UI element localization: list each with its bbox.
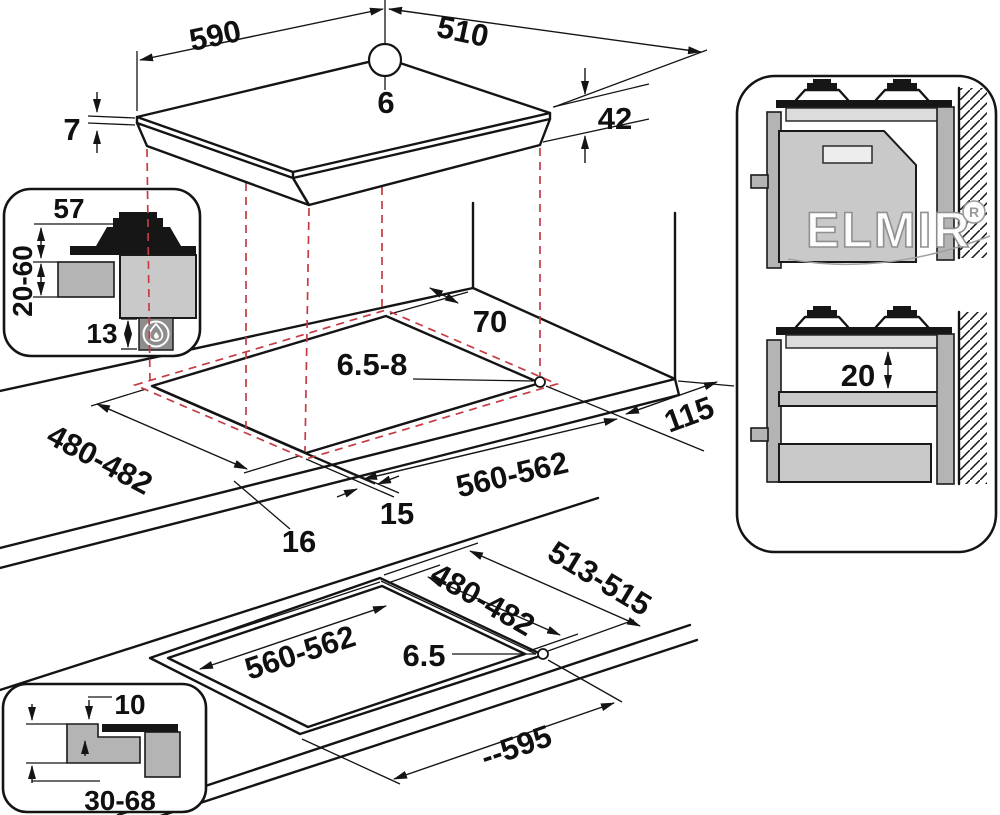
dim-cutout-width: 560-562 bbox=[157, 386, 704, 504]
dim-label-burner-height: 57 bbox=[53, 193, 84, 224]
dim-label-flush-worktop-thickness: 30-68 bbox=[84, 785, 156, 815]
dim-label-worktop-thickness: 20-60 bbox=[7, 245, 38, 317]
wall-hatching bbox=[959, 312, 987, 484]
dim-label-width: 590 bbox=[186, 13, 244, 58]
section-detail-inset: 57 20-60 13 bbox=[4, 189, 200, 356]
flush-hob-body-section bbox=[145, 732, 180, 777]
hob-glass-section bbox=[70, 246, 196, 255]
dim-label-depth: 510 bbox=[434, 9, 492, 54]
side-view-over-drawer: 20 bbox=[751, 306, 987, 484]
dim-label-flush-fixing-hole: 6.5 bbox=[402, 638, 445, 673]
watermark: ELMIR R bbox=[788, 201, 990, 264]
screw-hole-icon bbox=[535, 377, 545, 387]
hob-glass-side bbox=[776, 327, 952, 335]
dim-right-clearance: 115 bbox=[626, 381, 734, 439]
dim-hole: 6 bbox=[369, 0, 401, 120]
dim-label-flush-cutout-depth: 480-482 bbox=[425, 556, 541, 643]
burner-section bbox=[96, 227, 181, 246]
dim-overall-height: 42 bbox=[543, 68, 649, 163]
hob-glass-side bbox=[776, 100, 952, 108]
shelf bbox=[779, 392, 939, 406]
drawer-front bbox=[779, 444, 931, 482]
dim-label-hole: 6 bbox=[377, 85, 394, 120]
dim-label-edge-margin-side: 15 bbox=[380, 496, 414, 531]
dim-label-recess-lip: 10 bbox=[114, 689, 145, 720]
screw-hole-icon bbox=[538, 649, 548, 659]
watermark-brand: ELMIR bbox=[806, 202, 972, 258]
oven-vent bbox=[823, 146, 872, 163]
hole-callout-icon bbox=[369, 44, 401, 76]
dim-edge-margin-side: 15 bbox=[306, 453, 414, 531]
dim-label-air-gap: 20 bbox=[841, 358, 875, 393]
dim-label-fixing-hole: 6.5-8 bbox=[337, 347, 408, 382]
dim-label-clearance-below: 13 bbox=[86, 318, 117, 349]
dim-cutout-depth: 480-482 bbox=[41, 389, 299, 502]
dim-label-cutout-depth: 480-482 bbox=[41, 417, 158, 501]
flush-detail-inset: 10 30-68 bbox=[3, 684, 206, 815]
dim-label-recess-depth: 513-515 bbox=[542, 534, 658, 623]
dim-label-rear-clearance: 70 bbox=[473, 304, 507, 339]
flush-glass-section bbox=[102, 724, 178, 732]
hob-body-section bbox=[120, 255, 196, 318]
top-isometric-view: 590 510 6 7 42 bbox=[63, 0, 707, 205]
registered-mark-letter: R bbox=[969, 204, 979, 220]
dim-fixing-hole: 6.5-8 bbox=[337, 347, 533, 382]
hob-installation-diagram: 70 6.5-8 480-482 560-562 115 bbox=[0, 0, 1000, 815]
dim-label-recess-width: --595 bbox=[476, 718, 556, 775]
dim-flush-cutout-width: 560-562 bbox=[200, 606, 386, 687]
installation-diagram-page: 70 6.5-8 480-482 560-562 115 bbox=[0, 0, 1000, 815]
dim-width: 590 bbox=[137, 9, 383, 111]
worktop-section bbox=[58, 262, 114, 297]
dim-label-glass-thickness: 7 bbox=[63, 112, 80, 147]
dim-label-edge-margin-front: 16 bbox=[282, 524, 316, 559]
cabinet-side-views-panel: 20 ELMIR R bbox=[737, 76, 996, 552]
dim-label-overall-height: 42 bbox=[598, 101, 632, 136]
dim-glass-thickness: 7 bbox=[63, 92, 135, 153]
dim-recess-width: --595 bbox=[302, 660, 622, 784]
dim-depth: 510 bbox=[389, 9, 707, 107]
hob-glass-top bbox=[137, 58, 550, 172]
dim-edge-margin-front: 16 bbox=[234, 481, 316, 559]
